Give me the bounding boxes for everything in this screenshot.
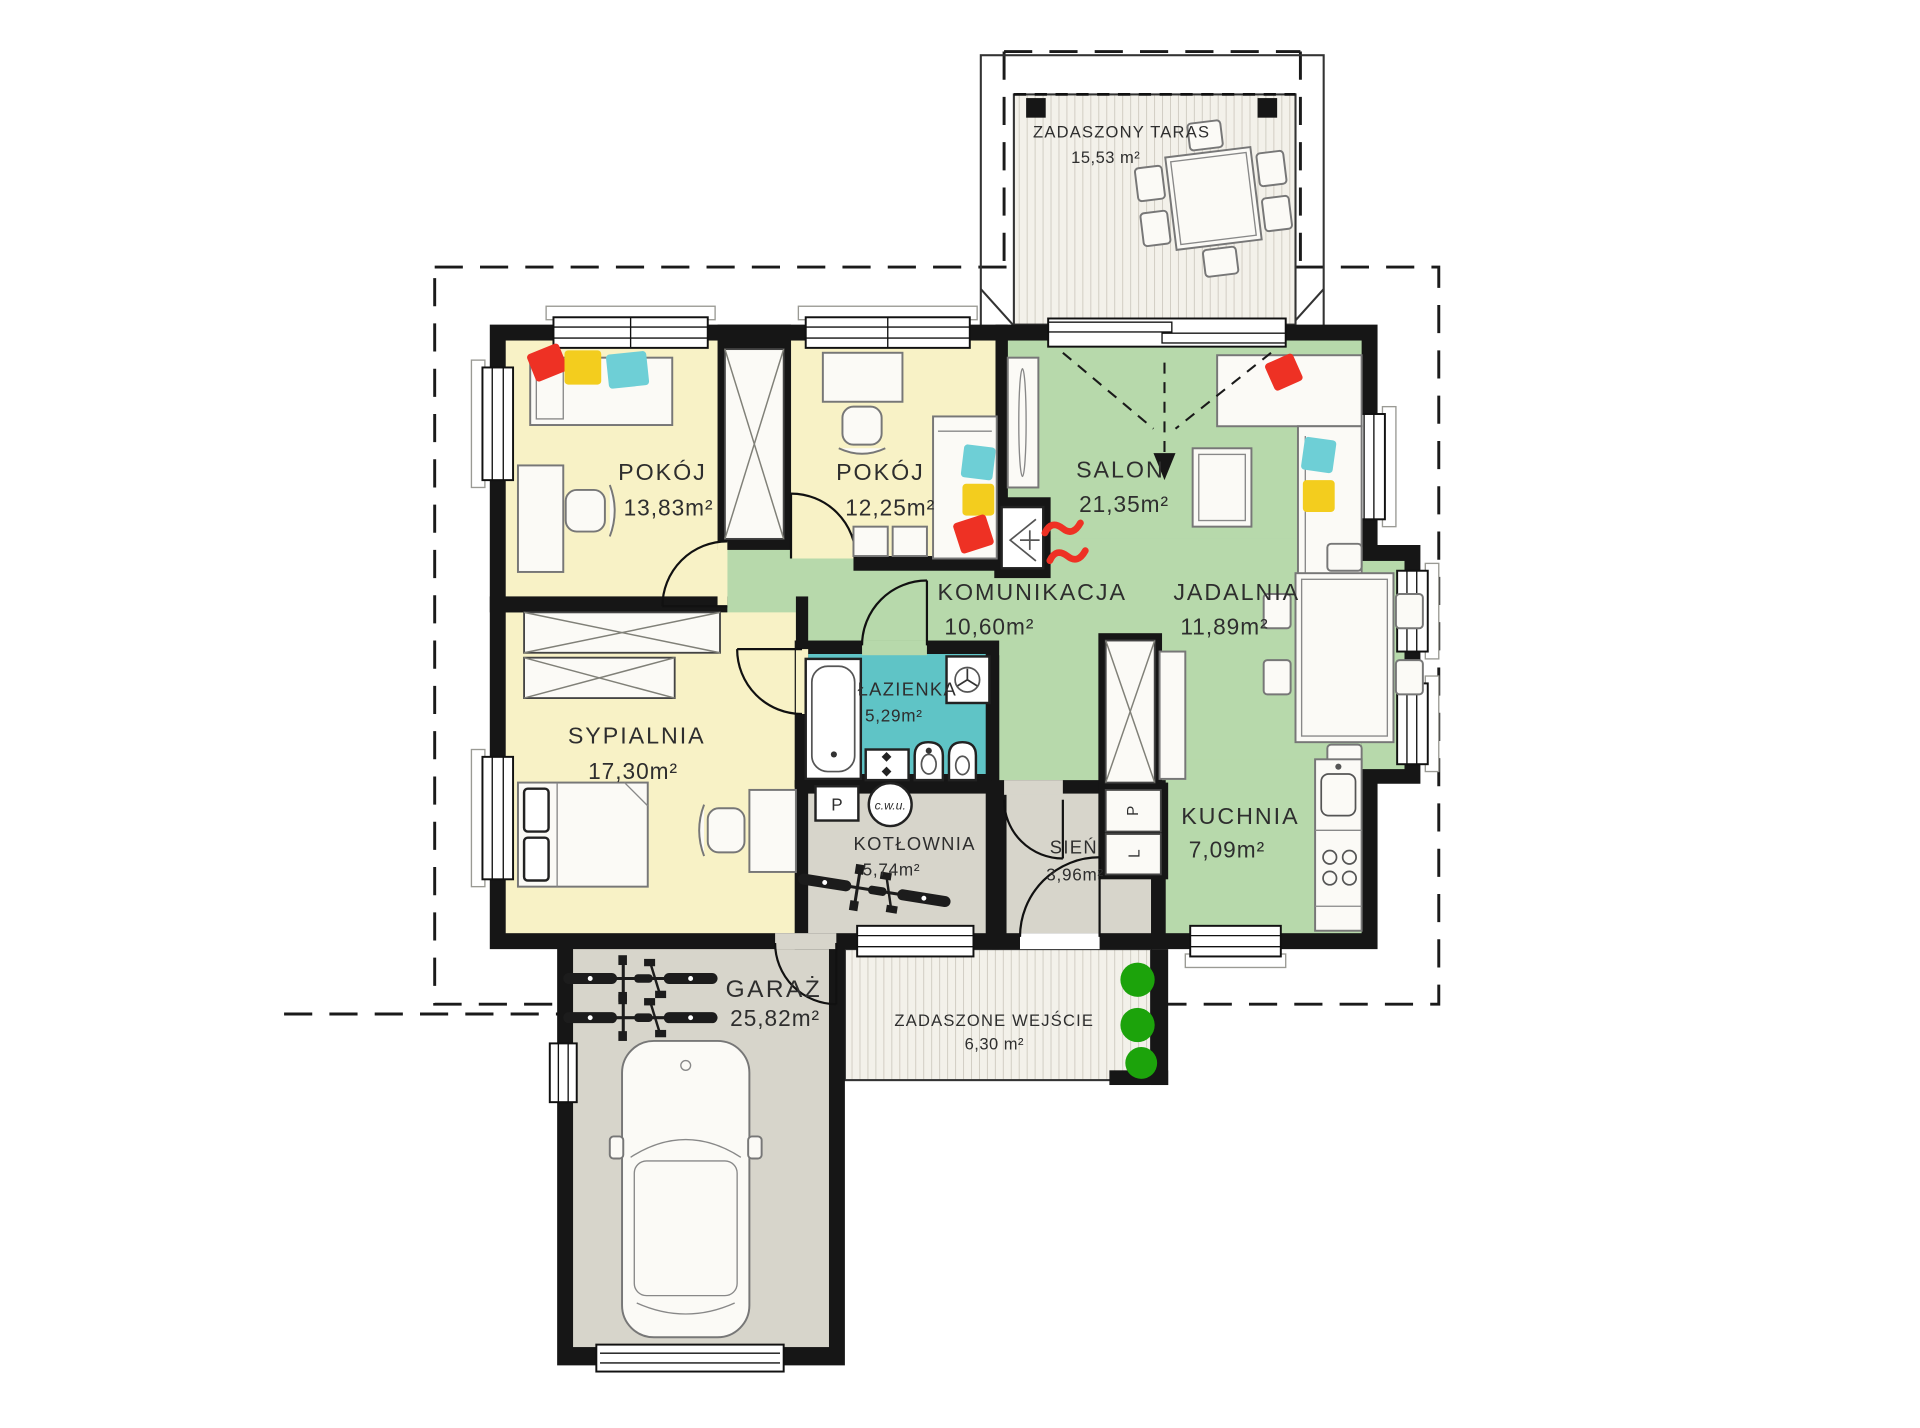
svg-text:7,09m²: 7,09m² xyxy=(1189,836,1265,862)
pillow-teal xyxy=(1301,436,1337,473)
window-pokoj1-north xyxy=(553,317,707,348)
floor-plan-canvas: ZADASZONY TARAS 15,53 m² ZADASZONE WEJŚC… xyxy=(0,0,1920,1428)
pillow-yellow xyxy=(962,484,994,516)
svg-text:GARAŻ: GARAŻ xyxy=(726,976,823,1003)
svg-text:SIEŃ: SIEŃ xyxy=(1050,837,1098,858)
chair xyxy=(566,490,605,532)
fireplace-insert xyxy=(1002,507,1044,568)
svg-text:KOTŁOWNIA: KOTŁOWNIA xyxy=(854,833,976,854)
coffee-table xyxy=(1193,448,1252,526)
svg-text:21,35m²: 21,35m² xyxy=(1079,491,1169,517)
chair xyxy=(1264,660,1291,694)
cabinet-label-l: L xyxy=(1126,849,1143,858)
svg-text:ZADASZONY TARAS: ZADASZONY TARAS xyxy=(1033,122,1210,141)
toilet xyxy=(915,742,943,780)
window-pokoj2-north xyxy=(806,317,970,348)
entrance-porch: ZADASZONE WEJŚCIE 6,30 m² xyxy=(845,949,1151,1080)
svg-text:ZADASZONE WEJŚCIE: ZADASZONE WEJŚCIE xyxy=(894,1011,1094,1030)
terrace-column xyxy=(1258,98,1278,118)
svg-text:5,29m²: 5,29m² xyxy=(865,705,923,725)
pillow-yellow xyxy=(564,350,601,384)
floor-plan-page: ZADASZONY TARAS 15,53 m² ZADASZONE WEJŚC… xyxy=(0,0,1920,1428)
hot-water-label: c.w.u. xyxy=(875,799,906,813)
svg-text:12,25m²: 12,25m² xyxy=(845,495,935,521)
window-sypialnia-west xyxy=(482,757,513,879)
svg-text:SYPIALNIA: SYPIALNIA xyxy=(568,722,706,748)
cabinet xyxy=(853,527,887,556)
svg-text:JADALNIA: JADALNIA xyxy=(1173,579,1300,605)
pillow xyxy=(524,838,548,881)
window-garaz-west xyxy=(550,1043,577,1102)
svg-text:KOMUNIKACJA: KOMUNIKACJA xyxy=(937,579,1127,605)
shrub-icon xyxy=(1120,963,1154,997)
wardrobe-hall xyxy=(1106,641,1155,783)
fridge-cabinet-column: P L xyxy=(1106,790,1161,874)
terrace-sliding-door xyxy=(1048,318,1286,346)
garage-door xyxy=(596,1345,783,1372)
terrace: ZADASZONY TARAS 15,53 m² xyxy=(981,55,1324,328)
svg-text:25,82m²: 25,82m² xyxy=(730,1005,820,1031)
wardrobe-between-rooms xyxy=(725,349,784,539)
bidet xyxy=(949,742,976,780)
window-jadalnia-east-2 xyxy=(1397,683,1428,764)
cabinet-label-p: P xyxy=(1125,806,1142,816)
car xyxy=(610,1041,762,1337)
window-pokoj1-west xyxy=(482,367,513,480)
chair xyxy=(1396,660,1423,694)
car-mirror xyxy=(748,1136,761,1158)
chair xyxy=(1327,544,1361,571)
svg-text:ŁAZIENKA: ŁAZIENKA xyxy=(858,679,958,700)
pillow xyxy=(524,789,548,832)
svg-text:3,96m²: 3,96m² xyxy=(1046,865,1104,885)
svg-text:POKÓJ: POKÓJ xyxy=(836,459,925,485)
pillow-teal xyxy=(606,351,650,389)
svg-text:11,89m²: 11,89m² xyxy=(1180,613,1268,639)
svg-text:5,74m²: 5,74m² xyxy=(863,860,921,880)
tall-cabinet xyxy=(1008,358,1039,488)
svg-text:10,60m²: 10,60m² xyxy=(944,613,1034,639)
shrubs xyxy=(1120,963,1157,1079)
shrub-icon xyxy=(1125,1047,1157,1079)
pillow-yellow xyxy=(1303,480,1335,512)
wardrobe-sypialnia-1 xyxy=(524,612,720,652)
pillow-teal xyxy=(960,444,996,481)
svg-text:15,53 m²: 15,53 m² xyxy=(1071,148,1140,167)
desk xyxy=(823,353,903,402)
desk xyxy=(518,465,563,572)
svg-text:POKÓJ: POKÓJ xyxy=(618,459,707,485)
chair xyxy=(842,407,881,445)
bathtub xyxy=(806,659,861,779)
desk xyxy=(749,790,796,872)
chair xyxy=(708,808,745,852)
wardrobe-sypialnia-2 xyxy=(524,658,675,698)
terrace-column xyxy=(1026,98,1046,118)
svg-text:SALON: SALON xyxy=(1076,457,1165,483)
kitchen-counter-west xyxy=(1160,652,1186,779)
window-kotlownia-south xyxy=(857,926,973,957)
car-mirror xyxy=(610,1136,623,1158)
svg-text:6,30 m²: 6,30 m² xyxy=(965,1035,1024,1054)
svg-text:17,30m²: 17,30m² xyxy=(588,758,678,784)
cabinet xyxy=(893,527,927,556)
boiler-label: P xyxy=(831,795,842,815)
chair xyxy=(1396,594,1423,628)
svg-text:13,83m²: 13,83m² xyxy=(624,495,714,521)
window-kuchnia-south xyxy=(1190,926,1281,957)
dining-table xyxy=(1296,573,1394,742)
bathroom-cabinet xyxy=(866,750,909,781)
shrub-icon xyxy=(1120,1008,1154,1042)
svg-text:KUCHNIA: KUCHNIA xyxy=(1181,803,1299,829)
